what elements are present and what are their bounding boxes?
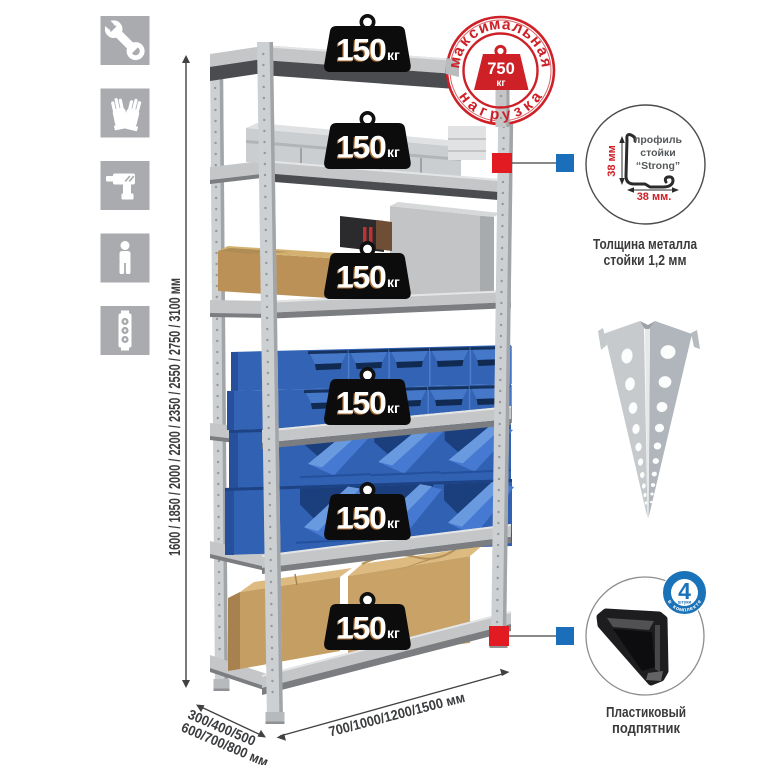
svg-text:“Strong”: “Strong” bbox=[636, 160, 680, 172]
svg-text:штуки: штуки bbox=[678, 600, 692, 605]
svg-text:38 мм.: 38 мм. bbox=[637, 191, 672, 203]
svg-text:кг: кг bbox=[496, 78, 505, 89]
svg-text:38 мм: 38 мм bbox=[606, 145, 618, 177]
svg-text:профиль: профиль bbox=[634, 134, 682, 146]
svg-text:подпятник: подпятник bbox=[612, 721, 681, 737]
svg-text:стойки: стойки bbox=[640, 147, 675, 159]
svg-text:750: 750 bbox=[487, 60, 515, 78]
svg-text:Толщина металла: Толщина металла bbox=[593, 237, 698, 253]
svg-text:Пластиковый: Пластиковый bbox=[606, 705, 686, 721]
svg-text:стойки 1,2 мм: стойки 1,2 мм bbox=[604, 253, 687, 269]
svg-text:1600 / 1850 / 2000 / 2200 / 23: 1600 / 1850 / 2000 / 2200 / 2350 / 2550 … bbox=[167, 278, 184, 556]
svg-text:м: м bbox=[488, 16, 502, 34]
